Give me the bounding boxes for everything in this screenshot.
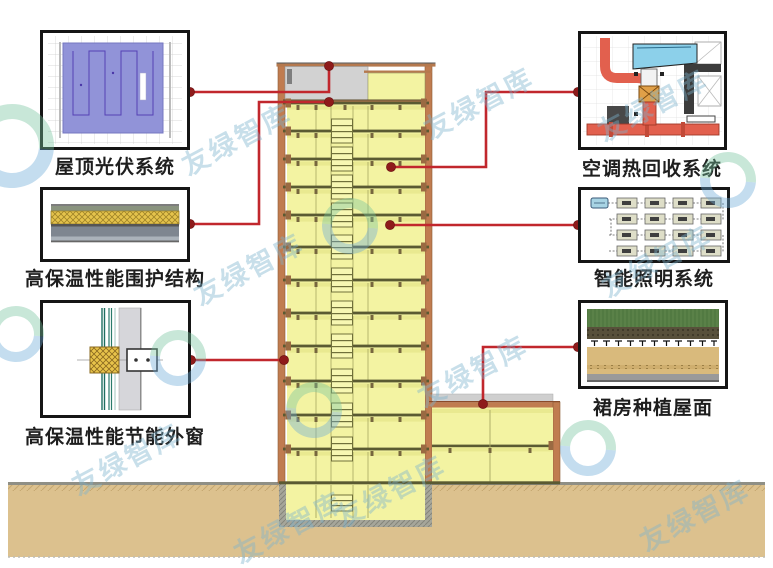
callout-dot [324,61,333,70]
callout-box-pv [40,30,190,150]
callout-box-green-roof [578,300,728,389]
callout-dot [279,355,288,364]
callout-box-window [40,300,191,418]
label-green-roof: 裙房种植屋面 [553,393,753,420]
callout-dot [478,399,487,408]
callout-dot [385,220,394,229]
callout-dot [324,97,333,106]
label-window: 高保温性能节能外窗 [15,422,215,449]
callout-box-lighting [578,187,730,263]
callout-dot [386,162,395,171]
callout-box-hvac [578,31,727,150]
window-thumbnail [43,303,188,415]
basement [279,483,432,527]
label-lighting: 智能照明系统 [554,264,754,291]
diagram-canvas: 屋顶光伏系统 高保温性能围护结构 高保温性能节能外窗 空调热回收系统 智能照明系… [0,0,773,568]
label-pv: 屋顶光伏系统 [15,152,215,179]
envelope-thumbnail [43,190,187,259]
callout-box-envelope [40,187,190,262]
hvac-thumbnail [581,34,724,147]
tower [277,63,436,484]
lighting-thumbnail [581,190,727,260]
green-roof-thumbnail [581,303,725,386]
pv-thumbnail [43,33,187,147]
label-envelope: 高保温性能围护结构 [15,264,215,291]
label-hvac: 空调热回收系统 [552,154,752,181]
